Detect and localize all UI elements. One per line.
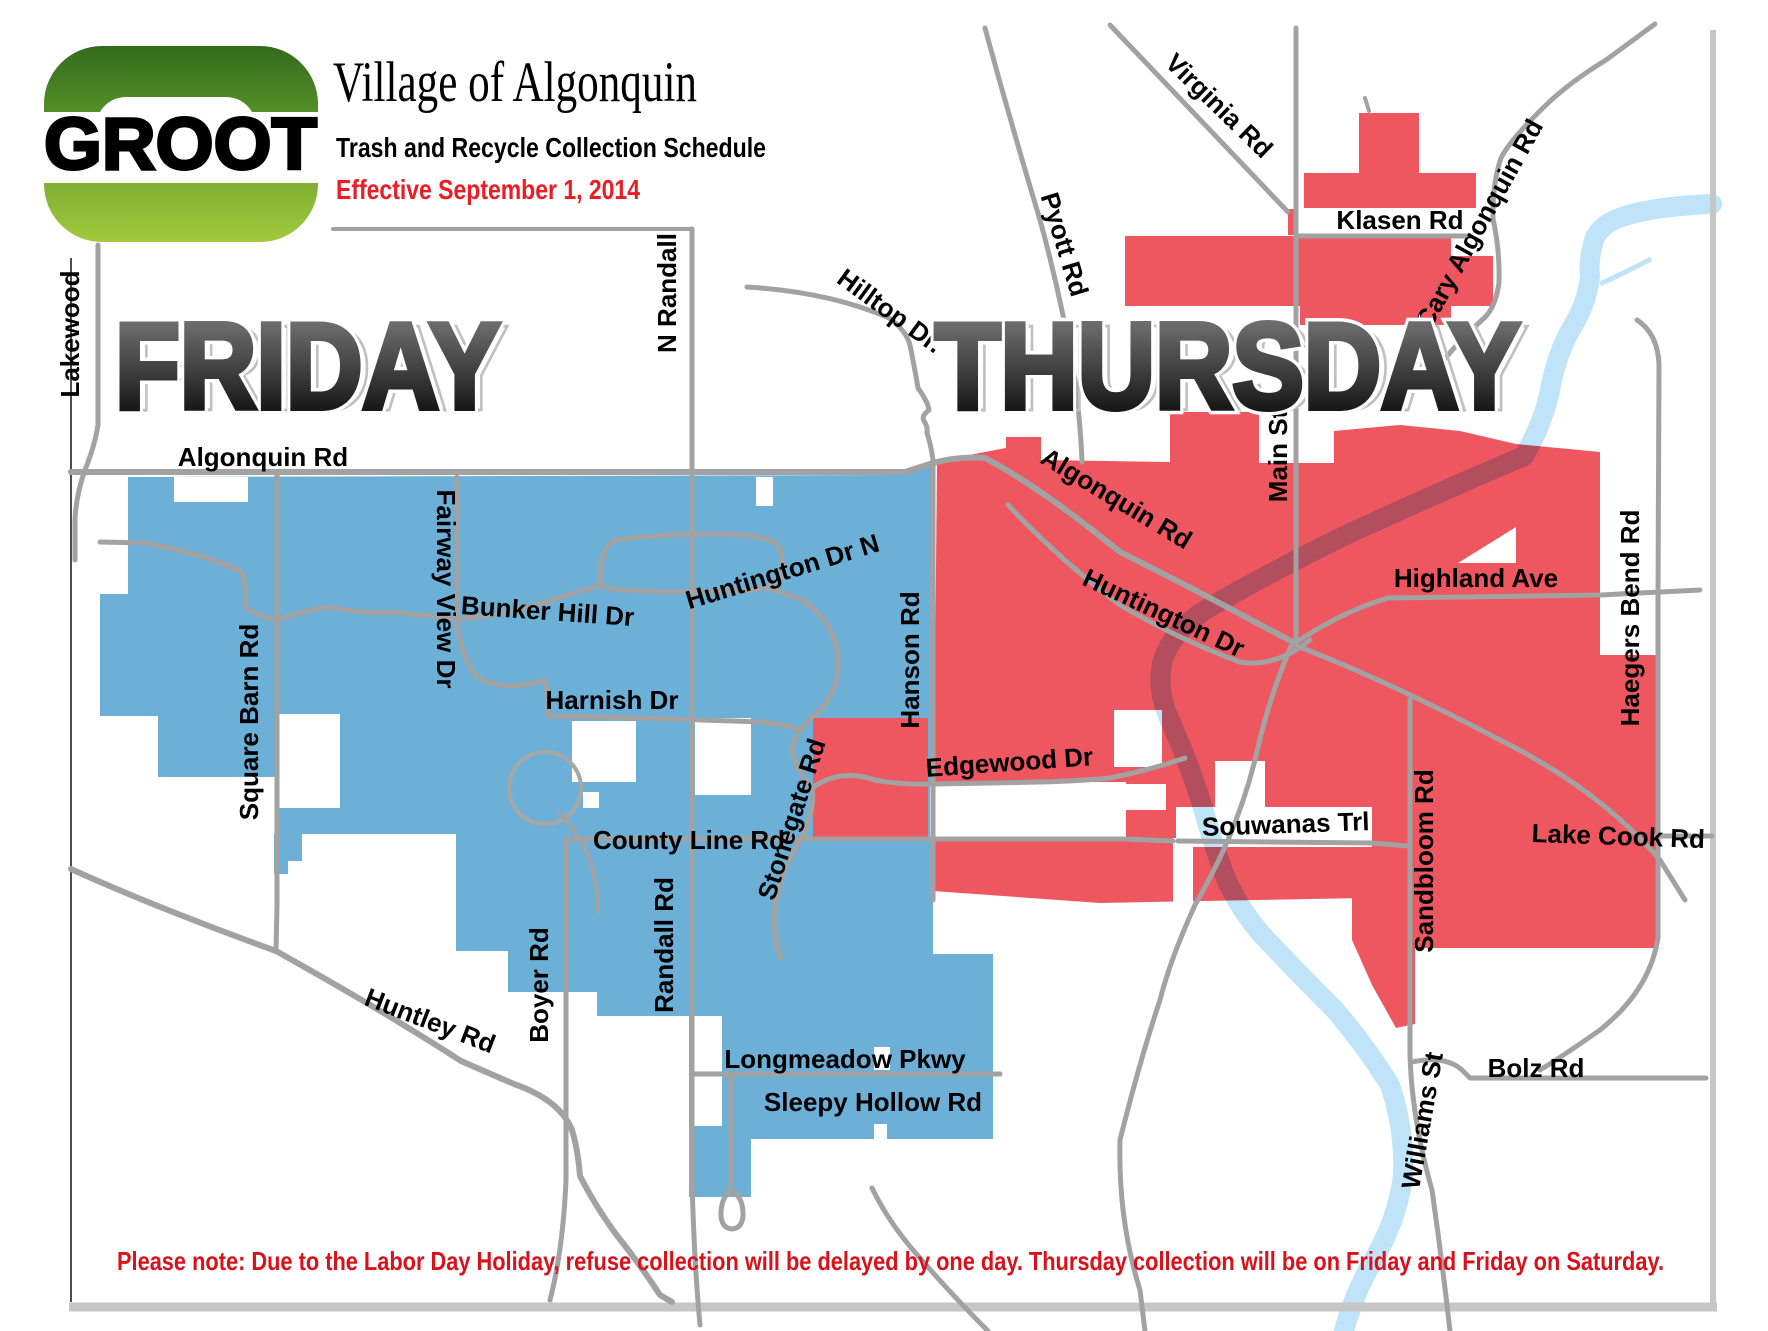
svg-text:N Randall: N Randall [652,233,682,353]
svg-text:Highland Ave: Highland Ave [1394,563,1558,593]
svg-text:Longmeadow Pkwy: Longmeadow Pkwy [724,1044,966,1074]
svg-text:Algonquin Rd: Algonquin Rd [178,442,348,472]
svg-text:GROOT: GROOT [44,104,317,185]
svg-text:Harnish Dr: Harnish Dr [546,685,679,715]
svg-text:Sandbloom Rd: Sandbloom Rd [1409,769,1439,952]
svg-text:Square Barn Rd: Square Barn Rd [234,624,264,821]
svg-text:Lakewood: Lakewood [55,270,85,397]
svg-text:Hanson Rd: Hanson Rd [895,591,925,728]
svg-text:Trash and Recycle Collection S: Trash and Recycle Collection Schedule [336,132,766,163]
svg-text:THURSDAY: THURSDAY [935,298,1520,434]
svg-text:Effective September 1, 2014: Effective September 1, 2014 [336,174,640,205]
svg-text:Please note: Due to the Labor: Please note: Due to the Labor Day Holida… [117,1246,1664,1276]
svg-text:Haegers Bend Rd: Haegers Bend Rd [1615,510,1645,727]
svg-text:County Line Rd: County Line Rd [593,825,785,855]
svg-text:Klasen Rd: Klasen Rd [1336,205,1463,235]
svg-text:Boyer Rd: Boyer Rd [524,927,554,1043]
svg-text:FRIDAY: FRIDAY [115,298,500,434]
svg-text:Lake Cook Rd: Lake Cook Rd [1531,818,1705,854]
svg-text:Fairway View Dr: Fairway View Dr [431,490,461,689]
svg-text:Bolz Rd: Bolz Rd [1488,1053,1585,1083]
svg-text:Village of Algonquin: Village of Algonquin [333,51,697,114]
svg-text:Sleepy Hollow Rd: Sleepy Hollow Rd [764,1087,982,1117]
svg-text:Randall Rd: Randall Rd [649,877,679,1013]
svg-text:Souwanas Trl: Souwanas Trl [1201,806,1370,842]
